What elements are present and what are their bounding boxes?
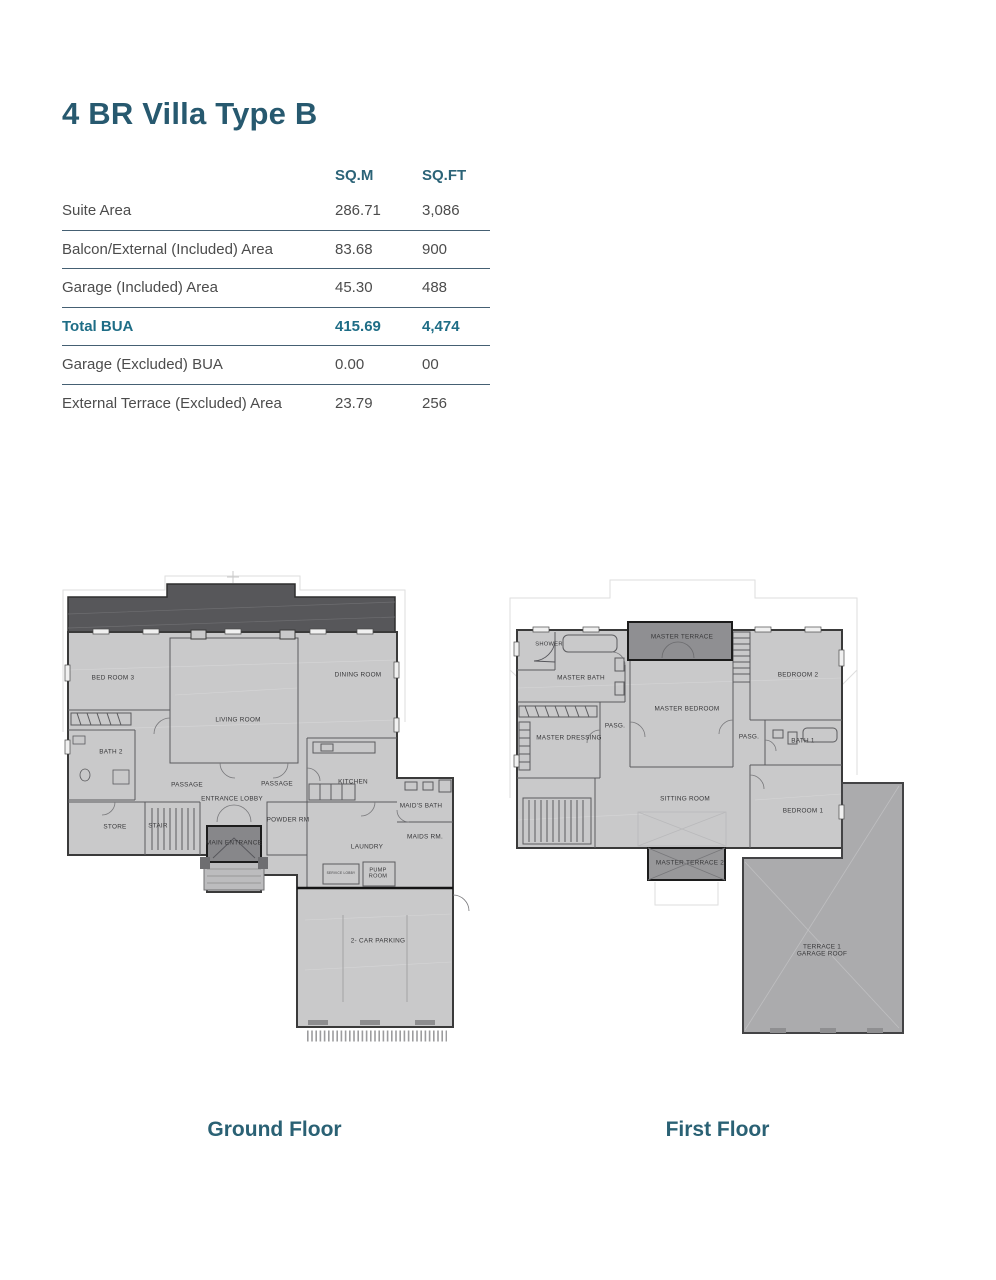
- area-table-body: Suite Area286.713,086Balcon/External (In…: [62, 192, 490, 422]
- area-table-row: Total BUA415.694,474: [62, 308, 490, 347]
- ground-floor-caption: Ground Floor: [62, 1118, 487, 1142]
- north-mark: [227, 571, 239, 583]
- area-table-cell: 23.79: [335, 395, 422, 412]
- area-table-row: Balcon/External (Included) Area83.68900: [62, 231, 490, 270]
- area-table-cell: 286.71: [335, 202, 422, 219]
- area-table-cell: 0.00: [335, 356, 422, 373]
- area-table-cell: 900: [422, 241, 490, 258]
- ground-floor-plan-drawing: [55, 570, 480, 1050]
- area-table-cell: 256: [422, 395, 490, 412]
- brochure-page: 4 BR Villa Type B SQ.M SQ.FT Suite Area2…: [0, 0, 996, 1280]
- area-table-cell: 4,474: [422, 318, 490, 335]
- area-table-row: Suite Area286.713,086: [62, 192, 490, 231]
- ground-floor-plan: BED ROOM 3DINING ROOMLIVING ROOMBATH 2PA…: [55, 570, 480, 1050]
- first-floor-outline: [517, 630, 842, 880]
- first-floor-caption: First Floor: [505, 1118, 930, 1142]
- area-table-row: Garage (Excluded) BUA0.0000: [62, 346, 490, 385]
- area-table-header-sqft: SQ.FT: [422, 167, 490, 184]
- area-table-header: SQ.M SQ.FT: [62, 158, 490, 192]
- area-table-cell: 415.69: [335, 318, 422, 335]
- area-table-row: External Terrace (Excluded) Area23.79256: [62, 385, 490, 423]
- first-floor-plan: SHOWERMASTER TERRACEBEDROOM 2MASTER BATH…: [505, 570, 930, 1050]
- area-table-cell: 00: [422, 356, 490, 373]
- area-table-header-sqm: SQ.M: [335, 167, 422, 184]
- area-table-cell: Balcon/External (Included) Area: [62, 241, 335, 258]
- master-terrace-block: [628, 622, 732, 660]
- area-table-cell: Garage (Excluded) BUA: [62, 356, 335, 373]
- area-table-cell: 3,086: [422, 202, 490, 219]
- page-title: 4 BR Villa Type B: [62, 96, 318, 132]
- area-table-cell: Total BUA: [62, 318, 335, 335]
- area-table-cell: External Terrace (Excluded) Area: [62, 395, 335, 412]
- area-table-cell: 488: [422, 279, 490, 296]
- area-table-row: Garage (Included) Area45.30488: [62, 269, 490, 308]
- area-table: SQ.M SQ.FT Suite Area286.713,086Balcon/E…: [62, 158, 490, 422]
- area-table-cell: 83.68: [335, 241, 422, 258]
- first-floor-plan-drawing: [505, 570, 930, 1050]
- area-table-cell: Garage (Included) Area: [62, 279, 335, 296]
- area-table-cell: 45.30: [335, 279, 422, 296]
- area-table-cell: Suite Area: [62, 202, 335, 219]
